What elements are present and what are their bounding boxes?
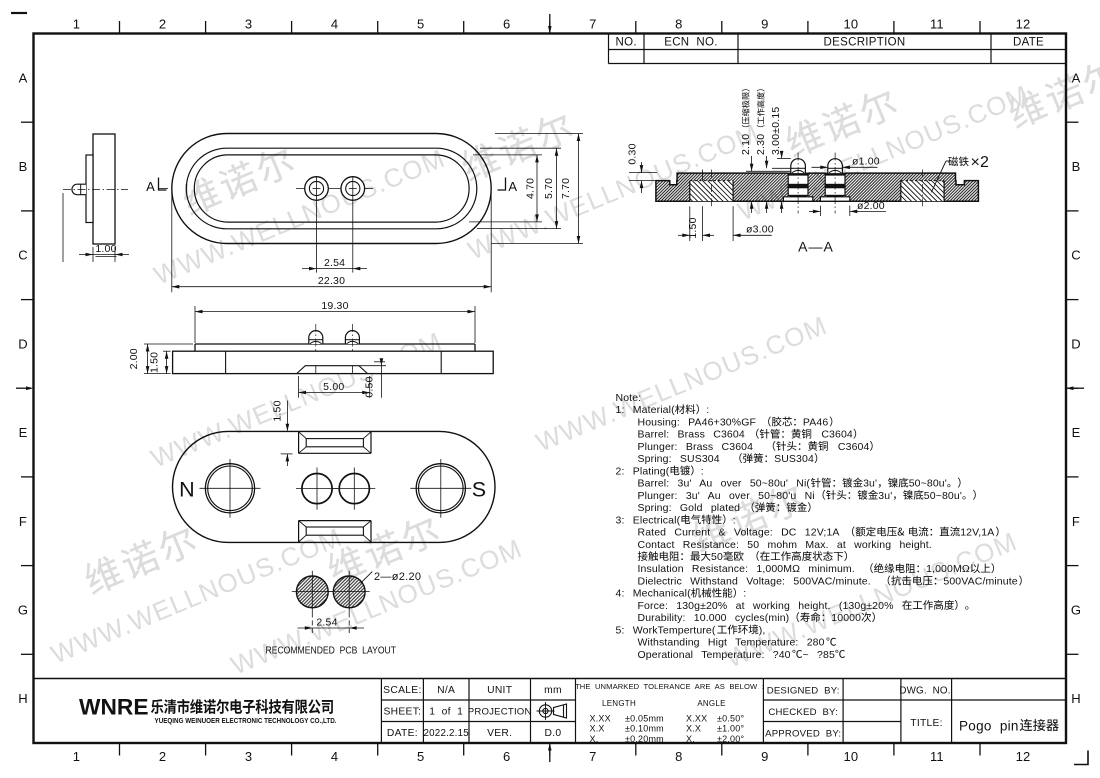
svg-text:DATE: DATE: [1013, 37, 1044, 49]
svg-text:1.50: 1.50: [687, 217, 699, 238]
svg-text:9: 9: [761, 17, 768, 32]
svg-text:6: 6: [503, 749, 510, 764]
svg-text:7.70: 7.70: [560, 178, 572, 199]
svg-text:3u': 3u': [878, 490, 892, 502]
svg-text:ø1.00: ø1.00: [852, 156, 880, 168]
svg-text:SHEET:: SHEET:: [383, 707, 421, 718]
svg-text:5.70: 5.70: [543, 178, 555, 199]
svg-text:2: 2: [159, 17, 166, 32]
svg-text:×2: ×2: [971, 154, 990, 171]
svg-text:F: F: [19, 514, 27, 529]
svg-text:Dielectric Withstand Voltage: Dielectric Withstand Voltage: 500VAC/min…: [638, 576, 880, 588]
svg-text:1 of 1: 1 of 1: [429, 707, 463, 718]
svg-text:10000: 10000: [831, 612, 861, 624]
svg-text:8: 8: [675, 749, 682, 764]
svg-text:7: 7: [589, 17, 596, 32]
svg-text:1.00: 1.00: [95, 243, 116, 255]
svg-text::: :: [743, 588, 746, 600]
svg-text:H: H: [1071, 691, 1081, 706]
svg-text:ø2.00: ø2.00: [857, 200, 885, 212]
svg-text:APPROVED BY:: APPROVED BY:: [765, 728, 841, 739]
svg-text:4: Mechanical(: 4: Mechanical(: [616, 588, 692, 600]
svg-text:2—ø2.20: 2—ø2.20: [374, 571, 421, 583]
svg-text:4.70: 4.70: [525, 178, 537, 199]
svg-text:2.00: 2.00: [128, 348, 140, 369]
svg-text:8: 8: [675, 17, 682, 32]
svg-text:22.30: 22.30: [318, 275, 345, 287]
svg-text:50~80u': 50~80u': [909, 478, 947, 490]
svg-text:C3604: C3604: [834, 441, 870, 453]
svg-text:),: ),: [759, 624, 766, 636]
svg-text:±0.20mm: ±0.20mm: [625, 734, 664, 744]
svg-text:C: C: [1071, 248, 1081, 263]
svg-text:1.50: 1.50: [149, 352, 161, 373]
svg-text:LENGTH: LENGTH: [602, 699, 636, 708]
svg-text:G: G: [18, 603, 28, 618]
svg-text:X.XX: X.XX: [686, 714, 707, 724]
svg-text:12V,1A: 12V,1A: [960, 527, 994, 539]
svg-text:TITLE:: TITLE:: [910, 718, 942, 729]
svg-text:ECN NO.: ECN NO.: [664, 37, 718, 49]
svg-text:5: 5: [417, 749, 424, 764]
svg-text:500VAC/minute: 500VAC/minute: [943, 576, 1017, 588]
svg-text:mm: mm: [544, 685, 562, 696]
svg-text:12: 12: [1016, 17, 1031, 32]
svg-text:DWG. NO.: DWG. NO.: [899, 685, 950, 696]
svg-text:5.00: 5.00: [323, 381, 344, 393]
svg-text:B: B: [19, 159, 28, 174]
svg-text:N: N: [179, 477, 195, 501]
svg-text:Withstanding Higt Temperatur: Withstanding Higt Temperature: 280: [638, 637, 825, 649]
svg-text:C3604: C3604: [817, 429, 853, 441]
svg-text:SUS304: SUS304: [774, 453, 814, 465]
svg-text:4: 4: [331, 17, 338, 32]
svg-text:X.XX: X.XX: [590, 714, 611, 724]
svg-text:CHECKED BY:: CHECKED BY:: [768, 707, 838, 718]
svg-text:NO.: NO.: [616, 37, 637, 49]
svg-text:Plunger: 3u' Au over 50~80: Plunger: 3u' Au over 50~80'u Ni: [638, 490, 815, 502]
svg-text:PROJECTION: PROJECTION: [468, 707, 532, 718]
svg-text:DESIGNED BY:: DESIGNED BY:: [767, 685, 840, 696]
svg-text:E: E: [1072, 425, 1081, 440]
svg-text:ANGLE: ANGLE: [697, 699, 725, 708]
svg-text:3u': 3u': [863, 478, 877, 490]
svg-text:2.54: 2.54: [316, 616, 337, 628]
svg-text:10: 10: [843, 17, 858, 32]
svg-text:D.0: D.0: [545, 728, 562, 739]
svg-text:A—A: A—A: [798, 239, 834, 255]
svg-text:1: 1: [73, 17, 80, 32]
svg-text:C: C: [18, 248, 28, 263]
svg-text:6: 6: [503, 17, 510, 32]
svg-text:Barrel: Brass C3604: Barrel: Brass C3604: [638, 429, 749, 441]
svg-text:9: 9: [761, 749, 768, 764]
svg-text:3: Electrical(: 3: Electrical(: [616, 514, 681, 526]
svg-text:Contact Resistance: 50 mohm: Contact Resistance: 50 mohm Max. at work…: [638, 539, 932, 551]
svg-text:X.X: X.X: [590, 724, 605, 734]
svg-text:±0.10mm: ±0.10mm: [625, 724, 664, 734]
svg-text:Pogo pin: Pogo pin: [959, 719, 1019, 734]
svg-text:A: A: [508, 179, 517, 194]
svg-text:F: F: [1072, 514, 1080, 529]
svg-text:X.: X.: [590, 734, 599, 744]
svg-text:UNIT: UNIT: [487, 685, 513, 696]
svg-text:E: E: [19, 425, 28, 440]
svg-text:Barrel: 3u' Au over 50~80u: Barrel: 3u' Au over 50~80u' Ni(: [638, 478, 811, 490]
svg-text:1: Material(: 1: Material(: [616, 404, 676, 416]
svg-text:G: G: [1071, 603, 1081, 618]
svg-text:19.30: 19.30: [321, 300, 348, 312]
svg-text:WNRE: WNRE: [79, 695, 149, 720]
svg-text:±0.05mm: ±0.05mm: [625, 714, 664, 724]
svg-text:DESCRIPTION: DESCRIPTION: [824, 37, 906, 49]
svg-text:VER.: VER.: [487, 728, 512, 739]
svg-text:N/A: N/A: [437, 685, 455, 696]
svg-text:11: 11: [930, 17, 944, 32]
svg-text:7: 7: [589, 749, 596, 764]
svg-text:S: S: [472, 477, 487, 501]
svg-text:2.10: 2.10: [740, 134, 752, 155]
svg-text:10: 10: [843, 749, 858, 764]
svg-text:2.54: 2.54: [324, 257, 345, 269]
svg-text::: :: [706, 404, 709, 416]
svg-text:A: A: [19, 70, 28, 85]
svg-text::: :: [701, 465, 704, 477]
svg-text:Housing: PA46+30%GF: Housing: PA46+30%GF: [638, 417, 761, 429]
svg-text:0.30: 0.30: [627, 143, 639, 164]
svg-text:Rated Current & Voltage: D: Rated Current & Voltage: DC 12V;1A: [638, 527, 844, 539]
svg-text:3: 3: [245, 17, 252, 32]
svg-text:X.X: X.X: [686, 724, 701, 734]
svg-text:Plunger: Brass C3604: Plunger: Brass C3604: [638, 441, 766, 453]
svg-text:50~80u': 50~80u': [924, 490, 962, 502]
svg-text:Spring: SUS304: Spring: SUS304: [638, 453, 733, 465]
svg-text:±1.00°: ±1.00°: [717, 724, 744, 734]
svg-text:0.50: 0.50: [364, 376, 376, 397]
svg-text:A: A: [146, 179, 155, 194]
svg-text:Insulation Resistance: 1,000: Insulation Resistance: 1,000MΩ minimum.: [638, 563, 864, 575]
svg-text:Note:: Note:: [616, 392, 642, 404]
svg-text:A: A: [1072, 70, 1081, 85]
svg-text:2: 2: [159, 749, 166, 764]
svg-text:1,000MΩ: 1,000MΩ: [926, 563, 970, 575]
svg-text:THE UNMARKED TOLERANCE ARE: THE UNMARKED TOLERANCE ARE AS BELOW :: [575, 682, 764, 691]
svg-text:2.30: 2.30: [755, 134, 767, 155]
svg-text:1.50: 1.50: [271, 400, 283, 421]
svg-text:X.: X.: [686, 734, 695, 744]
svg-text:RECOMMENDED PCB LAYOUT: RECOMMENDED PCB LAYOUT: [266, 645, 397, 657]
svg-text:1: 1: [73, 749, 80, 764]
svg-text:2: Plating(: 2: Plating(: [616, 465, 670, 477]
svg-text:2022.2.15: 2022.2.15: [424, 728, 470, 739]
svg-text:PA46: PA46: [803, 417, 828, 429]
svg-text:5: WorkTemperture(: 5: WorkTemperture(: [616, 624, 716, 636]
svg-text:12: 12: [1016, 749, 1031, 764]
svg-text:±0.50°: ±0.50°: [717, 714, 744, 724]
svg-text:5: 5: [417, 17, 424, 32]
svg-text:3.00±0.15: 3.00±0.15: [770, 107, 782, 155]
svg-text:4: 4: [331, 749, 338, 764]
svg-text:ø3.00: ø3.00: [746, 224, 774, 236]
svg-text:Force: 130g±20% at working: Force: 130g±20% at working height. (130g…: [638, 600, 902, 612]
svg-text:D: D: [18, 336, 28, 351]
svg-text:DATE:: DATE:: [387, 728, 418, 739]
svg-text:~ ?85: ~ ?85: [803, 649, 835, 661]
svg-text:±2.00°: ±2.00°: [717, 734, 744, 744]
svg-text:Durability: 10.000 cycles(mi: Durability: 10.000 cycles(min): [638, 612, 790, 624]
svg-text:11: 11: [930, 749, 944, 764]
svg-text:B: B: [1072, 159, 1081, 174]
svg-text:YUEQING WEINUOER ELECTRONIC TE: YUEQING WEINUOER ELECTRONIC TECHNOLOGY C…: [155, 716, 337, 725]
svg-text:50: 50: [711, 551, 723, 563]
svg-text:H: H: [18, 691, 28, 706]
svg-text:Spring: Gold plated: Spring: Gold plated: [638, 502, 745, 514]
svg-text:SCALE:: SCALE:: [383, 685, 421, 696]
svg-text:3: 3: [245, 749, 252, 764]
svg-text::: :: [733, 514, 736, 526]
svg-text:D: D: [1071, 336, 1081, 351]
svg-text:Operational Temperature: ?40: Operational Temperature: ?40: [638, 649, 791, 661]
